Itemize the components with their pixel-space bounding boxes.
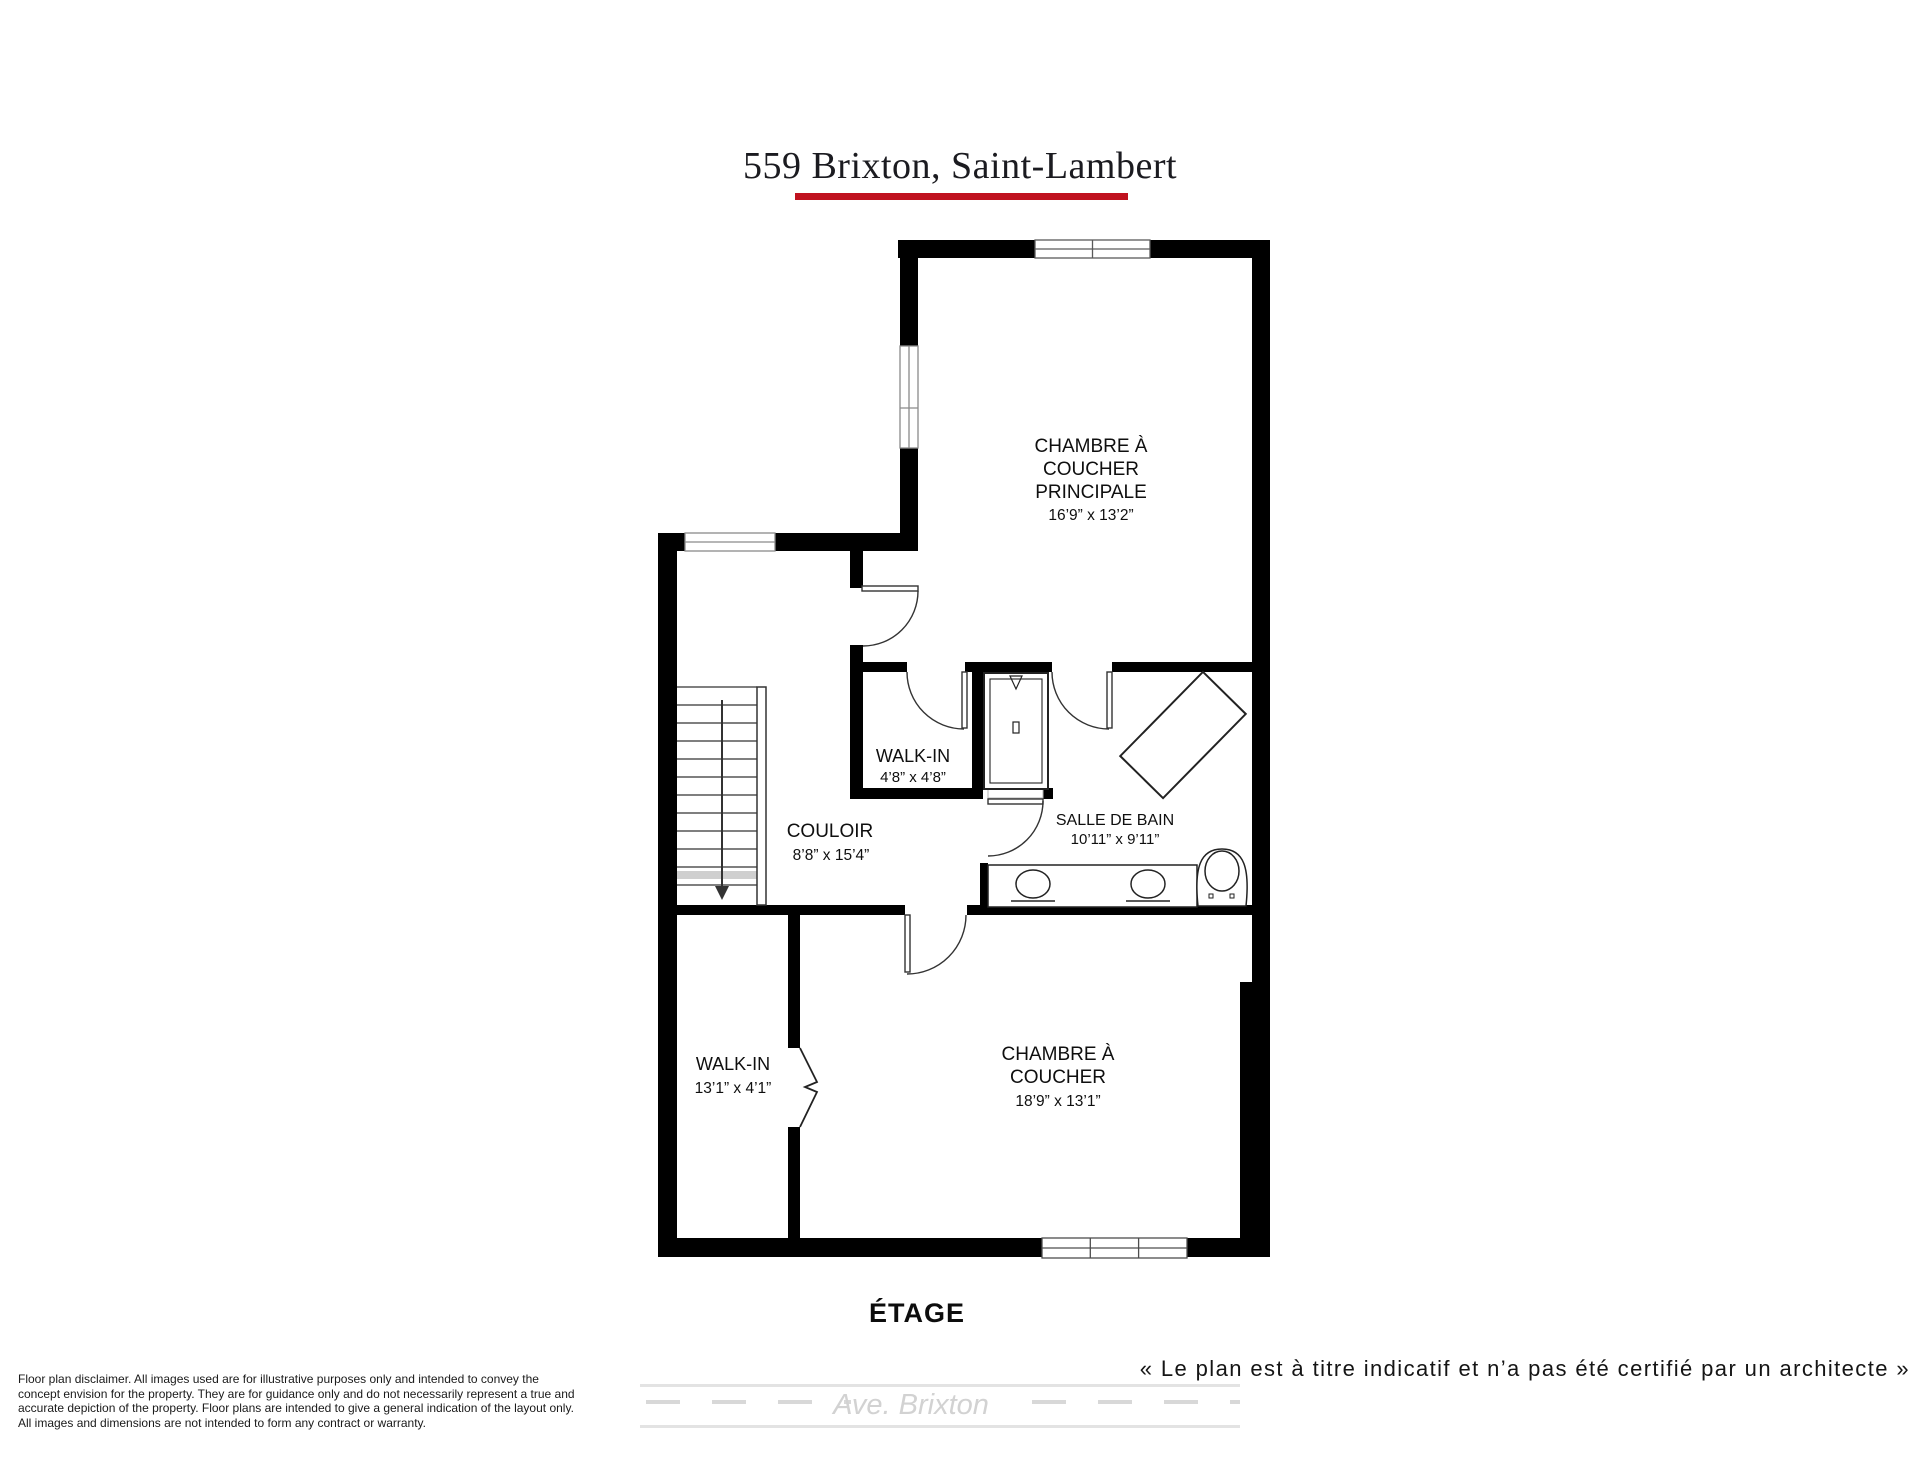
bathroom-label: SALLE DE BAIN — [1056, 812, 1174, 829]
street-edge-top — [640, 1384, 1240, 1387]
window-hallway — [685, 533, 775, 551]
vanity — [988, 865, 1197, 907]
door-bedroom — [905, 915, 966, 974]
page: 559 Brixton, Saint-Lambert — [0, 0, 1920, 1483]
walk-in-upper-dims: 4’8” x 4’8” — [880, 769, 946, 786]
architect-note: « Le plan est à titre indicatif et n’a p… — [1140, 1356, 1910, 1382]
disclaimer-line-3: accurate depiction of the property. Floo… — [18, 1401, 578, 1416]
toilet — [1197, 849, 1247, 906]
walk-in-lower-dims: 13’1” x 4’1” — [695, 1080, 772, 1097]
shower — [984, 673, 1048, 789]
bathtub — [1120, 672, 1246, 798]
disclaimer-line-4: All images and dimensions are not intend… — [18, 1416, 578, 1431]
window-top — [1035, 240, 1150, 258]
floor-label: ÉTAGE — [869, 1298, 965, 1329]
bedroom-dims: 18’9” x 13’1” — [1015, 1093, 1100, 1110]
hallway-label: COULOIR — [787, 821, 874, 842]
staircase — [677, 687, 766, 905]
master-bedroom-label-1: CHAMBRE À — [1035, 436, 1148, 457]
window-master-left — [900, 346, 918, 448]
disclaimer-line-1: Floor plan disclaimer. All images used a… — [18, 1372, 578, 1387]
walk-in-lower-label: WALK-IN — [696, 1054, 770, 1074]
street-edge-bottom — [640, 1425, 1240, 1428]
street-centerline-right — [1032, 1400, 1240, 1404]
stair-railing — [757, 687, 766, 905]
master-bedroom-dims: 16’9” x 13’2” — [1048, 507, 1133, 524]
street-label: Ave. Brixton — [833, 1389, 989, 1422]
stair-gray-tread — [677, 871, 757, 879]
master-bedroom-label-3: PRINCIPALE — [1035, 482, 1147, 503]
door-walk-in-upper — [907, 672, 967, 729]
window-bottom — [1042, 1238, 1187, 1258]
master-bedroom-label-2: COUCHER — [1043, 459, 1139, 480]
disclaimer: Floor plan disclaimer. All images used a… — [18, 1372, 578, 1430]
door-bathroom-from-hallway — [988, 789, 1043, 856]
door-bathroom-from-master — [1052, 672, 1112, 729]
disclaimer-line-2: concept envision for the property. They … — [18, 1387, 578, 1402]
bedroom-label-2: COUCHER — [1010, 1067, 1106, 1088]
walk-in-upper-label: WALK-IN — [876, 746, 950, 766]
bathroom-dims: 10’11” x 9’11” — [1071, 831, 1160, 848]
hallway-dims: 8’8” x 15’4” — [793, 847, 870, 864]
stairs-down-arrow — [715, 700, 729, 900]
street-centerline-left — [646, 1400, 851, 1404]
floor-plan: CHAMBRE À COUCHER PRINCIPALE 16’9” x 13’… — [0, 0, 1920, 1483]
door-master-bedroom — [862, 586, 918, 646]
bedroom-label-1: CHAMBRE À — [1002, 1044, 1115, 1065]
door-bifold-walk-in-lower — [800, 1048, 817, 1127]
